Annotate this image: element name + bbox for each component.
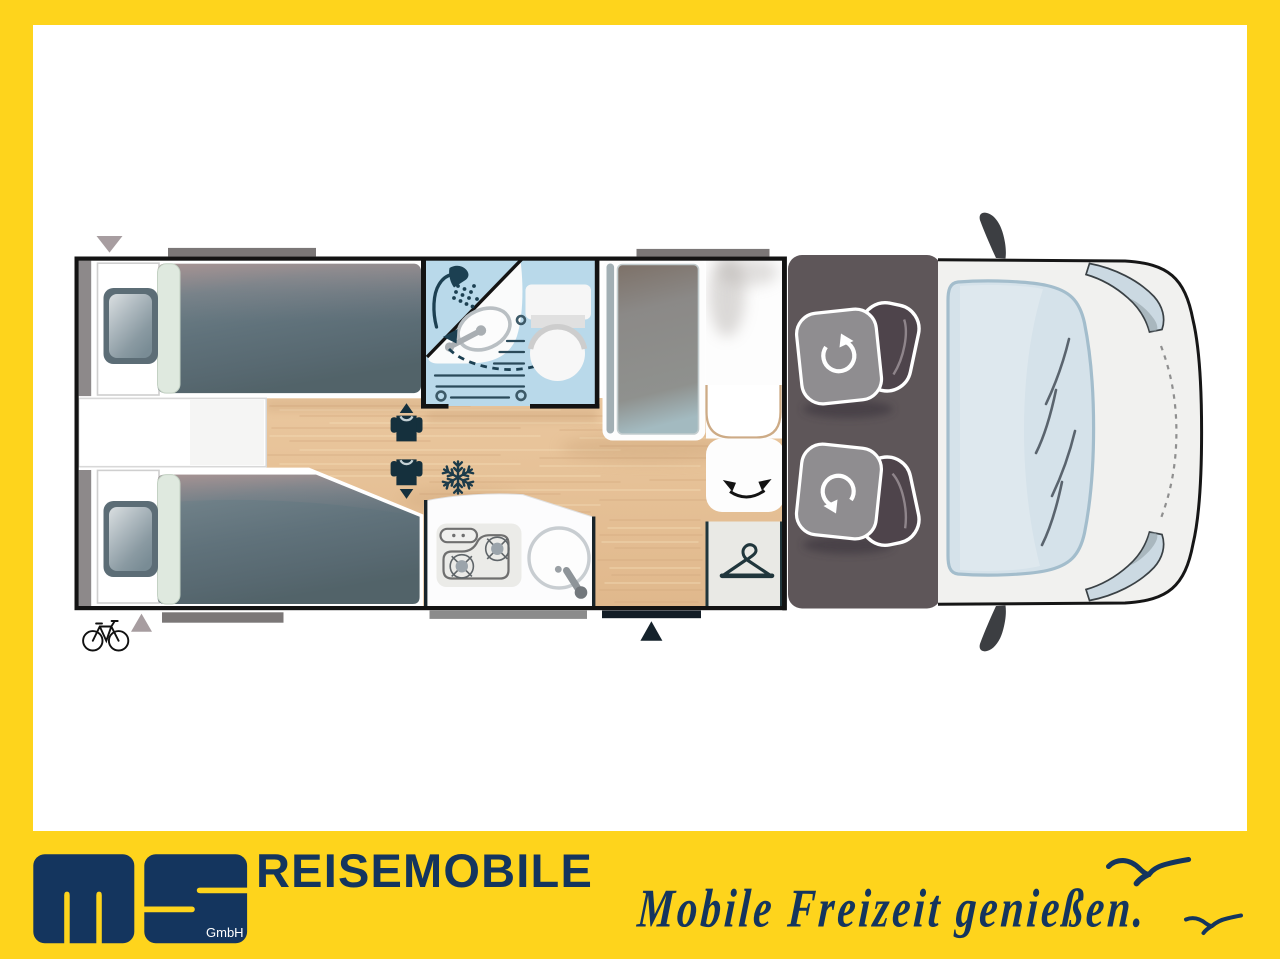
svg-text:GmbH: GmbH [206,925,244,940]
